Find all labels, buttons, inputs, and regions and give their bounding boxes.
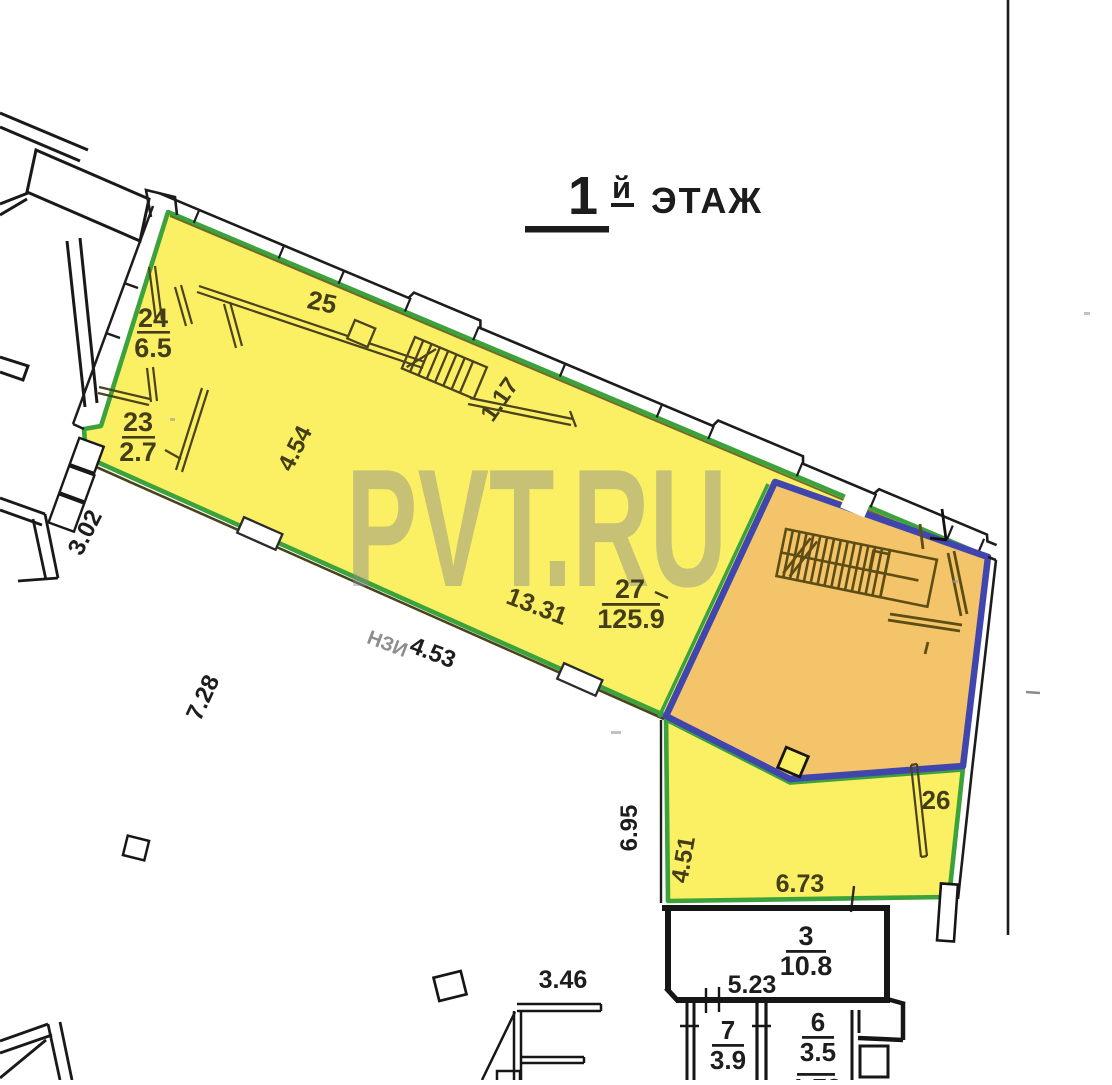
svg-text:1: 1: [568, 166, 598, 226]
svg-text:2.7: 2.7: [119, 437, 157, 467]
svg-text:6.73: 6.73: [776, 870, 825, 898]
svg-text:125.9: 125.9: [597, 604, 665, 634]
svg-text:10.8: 10.8: [780, 951, 833, 981]
svg-text:5.23: 5.23: [728, 971, 777, 999]
svg-text:6: 6: [811, 1007, 825, 1037]
svg-text:3.9: 3.9: [710, 1045, 746, 1075]
svg-text:3: 3: [798, 921, 813, 951]
svg-text:3.5: 3.5: [800, 1037, 836, 1067]
svg-text:24: 24: [138, 303, 168, 333]
svg-text:26: 26: [922, 785, 951, 815]
svg-text:25: 25: [305, 284, 340, 319]
svg-text:6.5: 6.5: [134, 333, 172, 363]
svg-text:6.95: 6.95: [616, 805, 643, 852]
svg-text:23: 23: [123, 407, 153, 437]
svg-text:й: й: [612, 170, 631, 205]
svg-text:1.72: 1.72: [791, 1073, 842, 1080]
svg-text:3.46: 3.46: [539, 966, 588, 994]
svg-text:7: 7: [721, 1015, 735, 1045]
svg-text:27: 27: [615, 574, 645, 604]
svg-text:ЭТАЖ: ЭТАЖ: [651, 180, 763, 221]
